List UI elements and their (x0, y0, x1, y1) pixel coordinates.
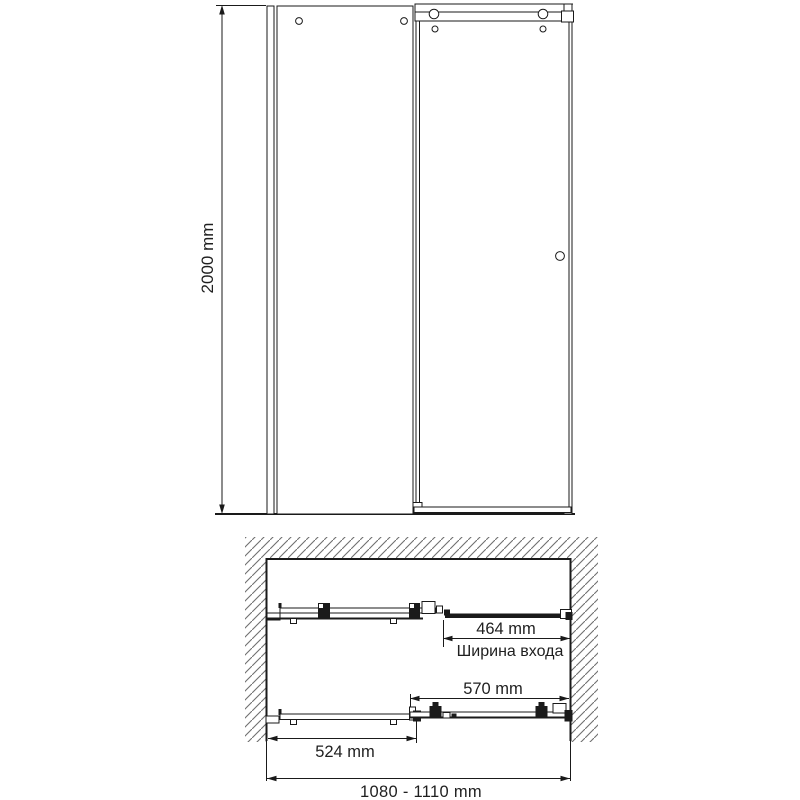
sliding-door-panel (416, 21, 569, 507)
rail-bracket-right-pad (566, 612, 573, 620)
panel-clamp-left (291, 720, 297, 725)
fixed-panel-hole-left (296, 18, 303, 25)
technical-drawing-sheet: 2000 mm (0, 0, 800, 800)
stopper-box (422, 602, 435, 614)
fixed-panel-width-value: 524 mm (315, 743, 375, 761)
door-closed-position (266, 702, 573, 725)
entrance-width-dimension: 464 mm Ширина входа (443, 620, 570, 660)
entrance-width-value: 464 mm (476, 620, 536, 638)
fixed-glass-panel (277, 6, 413, 514)
clamp-small (443, 713, 450, 719)
front-view: 2000 mm (198, 4, 575, 514)
arrowhead-right (407, 736, 417, 742)
guide-bar (414, 507, 571, 513)
fixed-panel-plan-bar (280, 714, 417, 720)
exposed-rail-bar (445, 614, 566, 619)
roller-wheel-left (429, 9, 439, 19)
end-stop (279, 603, 282, 608)
arrowhead-right (561, 776, 571, 782)
roller-wheel-right (538, 9, 548, 19)
plan-view: 464 mm Ширина входа 570 mm (245, 537, 598, 800)
arrowhead-down (219, 505, 225, 515)
arrowhead-left (268, 736, 278, 742)
roller-carriage-right-cap (410, 604, 414, 608)
panel-clamp-left (291, 619, 297, 624)
rail-wall-bracket (562, 11, 574, 22)
left-wall-profile (267, 6, 274, 514)
height-dimension-label: 2000 mm (198, 223, 217, 294)
roller-screw-right (540, 26, 546, 32)
entrance-width-caption: Ширина входа (457, 643, 564, 660)
roller-carriage-left (430, 706, 442, 718)
clamp-pad (452, 714, 457, 719)
rail-top-flange (415, 4, 573, 12)
arrowhead-left (410, 696, 420, 702)
wall-bracket-right (565, 710, 573, 722)
roller-screw-left (432, 26, 438, 32)
panel-clamp-right (391, 619, 397, 624)
arrowhead-right (560, 696, 570, 702)
front-height-dimension: 2000 mm (198, 5, 266, 514)
wall-bracket-left (266, 716, 279, 723)
door-width-value: 570 mm (463, 680, 523, 698)
door-glass (416, 21, 569, 507)
roller-carriage-left-cap (319, 604, 323, 608)
arrowhead-up (219, 5, 225, 15)
overall-width-dimension: 1080 - 1110 mm (267, 776, 570, 800)
panel-clamp-right (391, 720, 397, 725)
fixed-width-dimension: 524 mm (268, 721, 417, 761)
stopper-box (553, 704, 566, 714)
fixed-panel-hole-right (401, 18, 408, 25)
roller-carriage-right (536, 706, 548, 718)
arrowhead-left (443, 636, 453, 642)
arrowhead-left (267, 776, 277, 782)
stopper-small (437, 606, 443, 613)
overall-width-value: 1080 - 1110 mm (360, 783, 482, 800)
shower-door-drawing: 2000 mm (0, 0, 800, 800)
arrowhead-right (561, 636, 571, 642)
